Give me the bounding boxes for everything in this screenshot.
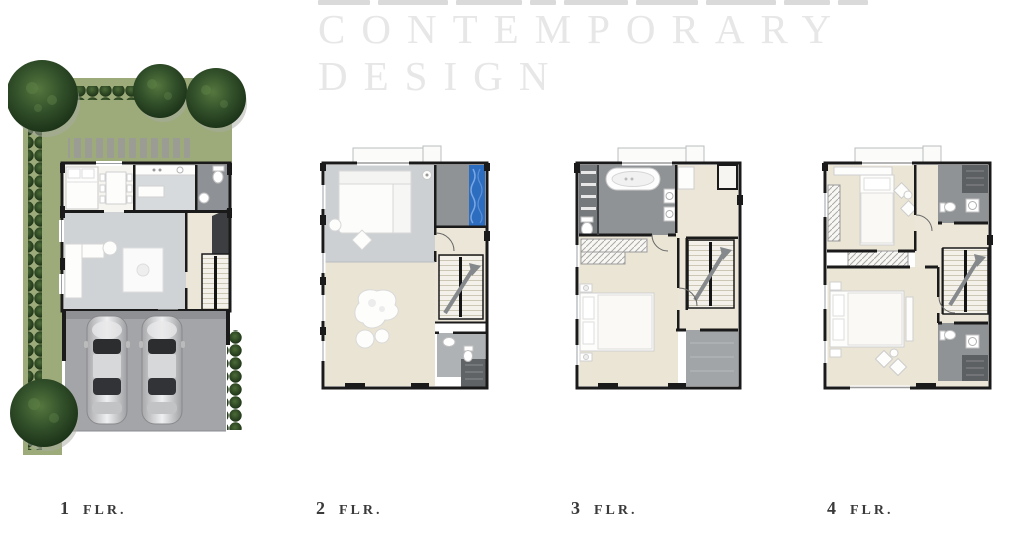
master-bath (579, 165, 676, 236)
balcony-outline (686, 146, 704, 162)
closet (461, 359, 487, 387)
floor-plan-1 (8, 58, 258, 468)
floor-label-text: FLR. (594, 503, 638, 518)
cabinet (678, 167, 694, 189)
sink-icon (199, 193, 209, 203)
slat-deck (68, 138, 190, 158)
floor-number: 2 (316, 498, 328, 518)
floor-label-text: FLR. (850, 503, 894, 518)
toilet-icon (464, 346, 474, 362)
floor-label-4: 4FLR. (827, 498, 894, 519)
dining-table (100, 172, 132, 204)
title-line-2: DESIGN (318, 53, 847, 100)
staircase (943, 248, 988, 314)
staircase (439, 255, 483, 319)
bathtub-icon (606, 168, 660, 190)
toilet-icon (581, 217, 593, 236)
bed-icon (580, 284, 654, 361)
shelf (834, 167, 892, 175)
staircase (202, 254, 230, 311)
floor-label-text: FLR. (83, 503, 127, 518)
bed-icon (830, 282, 913, 357)
balcony-outline (923, 146, 941, 162)
bathroom (938, 323, 988, 381)
floor-label-text: FLR. (339, 503, 383, 518)
wardrobe (848, 251, 908, 266)
pool (469, 165, 485, 227)
floor-label-1: 1FLR. (60, 498, 127, 519)
corner-closet (718, 165, 737, 189)
floor-plan-3 (568, 145, 748, 395)
deck-floor (435, 165, 469, 227)
sink-icon (443, 338, 455, 347)
floor-plan-2 (315, 145, 495, 395)
floor-plan-4 (820, 145, 998, 395)
floor-label-3: 3FLR. (571, 498, 638, 519)
balcony-outline (423, 146, 441, 162)
closet (962, 165, 988, 193)
bed-icon (66, 167, 98, 209)
bathroom (938, 165, 988, 223)
car-icon (139, 316, 185, 424)
toilet-icon (940, 331, 956, 341)
tree-icon (10, 379, 79, 451)
wardrobe (828, 185, 840, 241)
toilet-icon (213, 166, 224, 183)
floor-number: 4 (827, 498, 839, 518)
floorplan-sheet: CONTEMPORARY DESIGN (0, 0, 1024, 542)
toilet-icon (940, 203, 956, 213)
floor-number: 3 (571, 498, 583, 518)
tree-icon (8, 60, 80, 137)
floor-number: 1 (60, 498, 72, 518)
bed-icon (860, 175, 894, 245)
bathroom-floor (196, 165, 230, 212)
floor-label-2: 2FLR. (316, 498, 383, 519)
balcony-floor (686, 330, 738, 386)
page-title: CONTEMPORARY DESIGN (318, 6, 847, 100)
title-line-1: CONTEMPORARY (318, 6, 847, 53)
car-icon (84, 316, 130, 424)
